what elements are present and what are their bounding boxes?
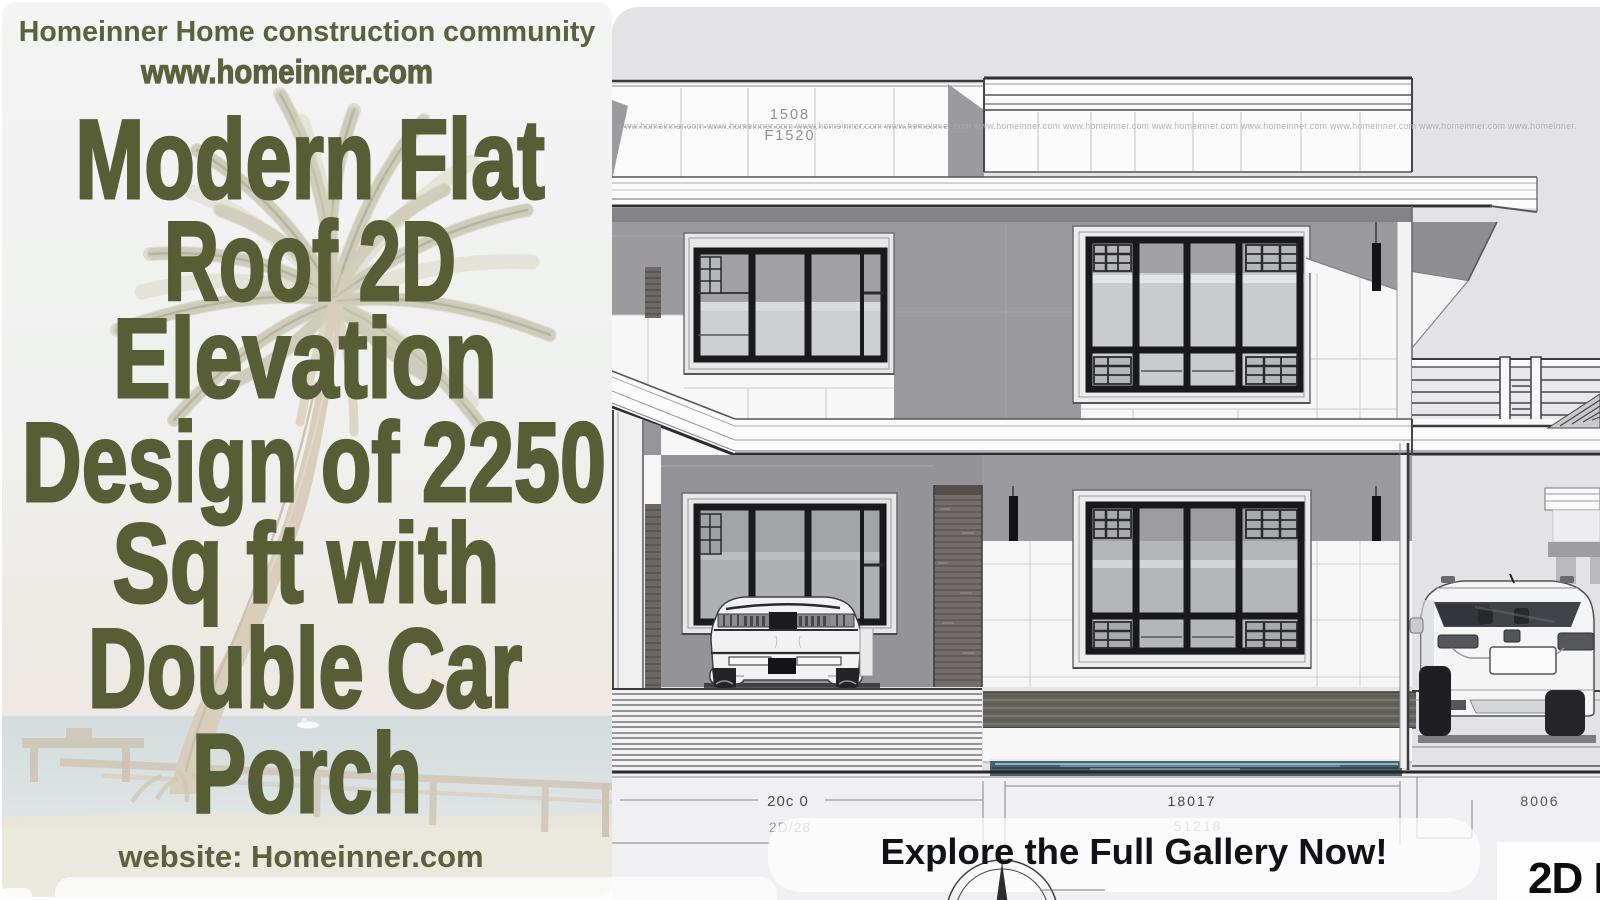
svg-text:Porch: Porch [192,710,422,836]
svg-text:F1520: F1520 [764,128,815,144]
svg-text:2D El: 2D El [1528,854,1600,900]
svg-text:www.homeinner.com: www.homeinner.com [140,53,433,90]
svg-text:Explore the Full Gallery Now!: Explore the Full Gallery Now! [880,831,1387,872]
svg-text:1508: 1508 [770,107,810,123]
svg-text:18017: 18017 [1168,793,1217,809]
svg-text:www.homeinner.com www.homeinne: www.homeinner.com www.homeinner.com www.… [617,121,1577,131]
svg-text:8006: 8006 [1520,793,1559,809]
svg-text:website: Homeinner.com: website: Homeinner.com [117,839,483,874]
svg-text:20c 0: 20c 0 [767,793,809,810]
svg-text:Homeinner Home construction co: Homeinner Home construction community [19,16,596,48]
